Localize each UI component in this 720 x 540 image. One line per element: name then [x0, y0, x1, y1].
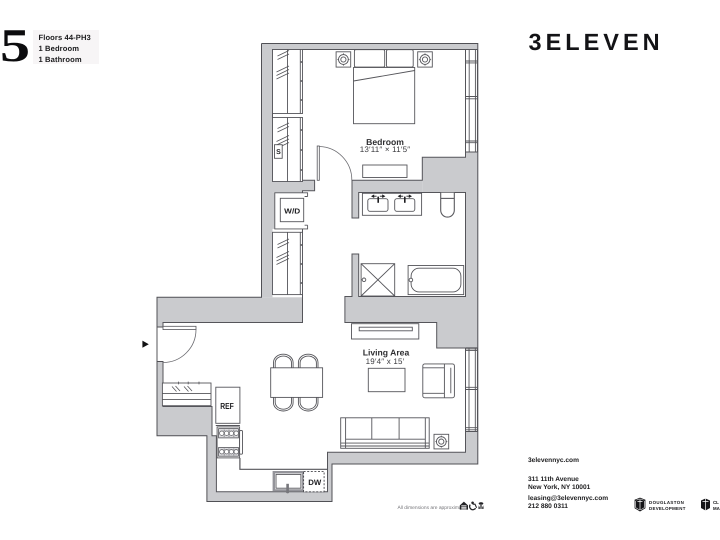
svg-text:W/D: W/D — [284, 206, 300, 215]
svg-text:DEVELOPMENT: DEVELOPMENT — [649, 506, 686, 511]
svg-text:13′11″ × 11′5″: 13′11″ × 11′5″ — [360, 145, 411, 154]
svg-text:CL: CL — [713, 500, 719, 505]
svg-text:MA: MA — [713, 506, 720, 511]
svg-text:REF: REF — [220, 401, 234, 411]
svg-text:DOUGLASTON: DOUGLASTON — [649, 500, 684, 505]
svg-text:19′4″ x 15′: 19′4″ x 15′ — [366, 357, 405, 366]
svg-text:DW: DW — [308, 478, 322, 487]
svg-text:Living Area: Living Area — [363, 347, 410, 357]
svg-text:S: S — [276, 149, 281, 156]
svg-text:All dimensions are approximate: All dimensions are approximate. — [398, 505, 468, 511]
